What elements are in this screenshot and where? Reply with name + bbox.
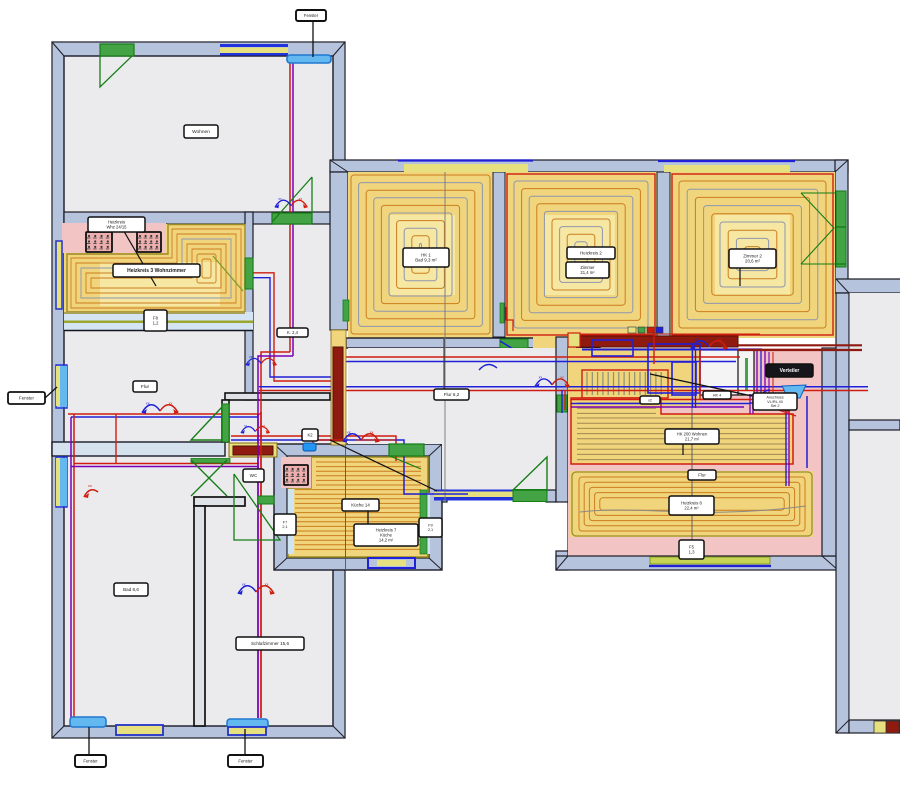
- svg-text:Whz 24/15: Whz 24/15: [106, 224, 127, 229]
- svg-text:Fenster: Fenster: [83, 759, 98, 764]
- svg-text:21,4 m²: 21,4 m²: [580, 270, 595, 275]
- svg-text:xx: xx: [560, 376, 564, 380]
- svg-text:1,2: 1,2: [153, 320, 159, 325]
- svg-text:Verteiler: Verteiler: [780, 368, 800, 374]
- svg-text:Schlafzimmer 15,6: Schlafzimmer 15,6: [251, 641, 289, 646]
- svg-text:WC: WC: [250, 473, 258, 478]
- svg-text:VL/RL 40: VL/RL 40: [767, 400, 783, 404]
- svg-text:x2: x2: [648, 398, 652, 402]
- svg-text:xx: xx: [244, 423, 248, 427]
- svg-text:14,2 m²: 14,2 m²: [379, 537, 394, 542]
- svg-text:Wohnen: Wohnen: [192, 129, 210, 135]
- svg-text:2,1: 2,1: [428, 528, 433, 532]
- svg-text:Heizkreis 3 Wohnzimmer: Heizkreis 3 Wohnzimmer: [127, 268, 186, 274]
- svg-text:xx: xx: [265, 582, 269, 586]
- svg-text:20,6 m²: 20,6 m²: [745, 259, 760, 264]
- svg-text:HK 4: HK 4: [713, 393, 721, 397]
- svg-text:21,7 m²: 21,7 m²: [685, 436, 700, 441]
- svg-text:2,1: 2,1: [282, 525, 287, 529]
- svg-text:Küche 14: Küche 14: [351, 503, 370, 508]
- svg-text:Flur: Flur: [698, 473, 706, 478]
- svg-text:xx: xx: [88, 483, 92, 488]
- svg-text:1,3: 1,3: [689, 549, 695, 554]
- svg-text:xx: xx: [249, 355, 253, 359]
- svg-text:Set 2: Set 2: [771, 404, 780, 408]
- svg-text:xx: xx: [718, 337, 722, 341]
- svg-text:xx: xx: [299, 197, 303, 201]
- svg-text:Fenster: Fenster: [19, 396, 34, 401]
- svg-text:K. 2,4: K. 2,4: [287, 330, 299, 335]
- svg-text:xx: xx: [146, 401, 150, 405]
- svg-text:xx: xx: [262, 423, 266, 427]
- svg-text:F9: F9: [428, 524, 432, 528]
- svg-text:Anschluss: Anschluss: [766, 395, 783, 399]
- svg-text:xx: xx: [268, 355, 272, 359]
- svg-text:F7: F7: [283, 521, 287, 525]
- svg-text:Bad 9,3 m²: Bad 9,3 m²: [415, 258, 437, 263]
- svg-text:Fenster: Fenster: [238, 759, 253, 764]
- svg-text:22,4 m²: 22,4 m²: [684, 505, 699, 510]
- svg-text:xx: xx: [695, 337, 699, 341]
- svg-text:Heizkreis 2: Heizkreis 2: [580, 251, 602, 256]
- svg-text:xx: xx: [539, 376, 543, 380]
- svg-text:Bad 8,6: Bad 8,6: [123, 587, 139, 592]
- svg-text:Fenster: Fenster: [304, 13, 319, 18]
- svg-text:xx: xx: [347, 430, 351, 434]
- svg-text:xx: xx: [242, 582, 246, 586]
- svg-text:xx: xx: [169, 401, 173, 405]
- svg-text:Flur 6,2: Flur 6,2: [444, 392, 460, 397]
- svg-text:K2: K2: [307, 433, 313, 438]
- svg-text:xx: xx: [370, 430, 374, 434]
- svg-text:xx: xx: [278, 197, 282, 201]
- svg-text:Flur: Flur: [141, 384, 150, 390]
